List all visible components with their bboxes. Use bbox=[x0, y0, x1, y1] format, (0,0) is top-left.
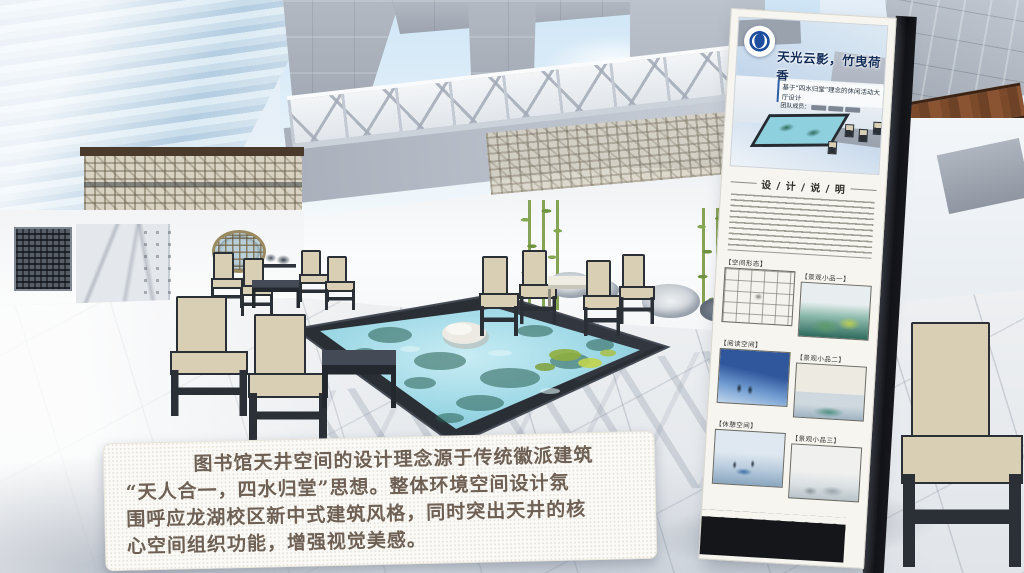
signboard-render-image: 天光云影，竹曳荷香 基于“四水归堂”理念的休闲活动大厅设计 团队成员： bbox=[730, 16, 889, 175]
signboard-bottom-band bbox=[700, 516, 846, 562]
gallery-item: 【阅读空间】 bbox=[716, 337, 791, 417]
wall-calligraphy bbox=[144, 222, 174, 294]
gallery-item: 【景观小品二】 bbox=[793, 352, 868, 422]
gallery-image-reading-space bbox=[717, 348, 791, 407]
armchair bbox=[246, 314, 330, 442]
armchair bbox=[582, 260, 622, 336]
armchair bbox=[324, 256, 356, 310]
gallery-image-landscape-2 bbox=[793, 362, 867, 421]
caption-box: 图书馆天井空间的设计理念源于传统徽派建筑 “天人合一，四水归堂”思想。整体环境空… bbox=[103, 431, 658, 571]
design-notes-title: 设 / 计 / 说 / 明 bbox=[761, 176, 847, 196]
tea-table bbox=[252, 280, 300, 308]
courtyard-3d-viewport[interactable]: 天光云影，竹曳荷香 基于“四水归堂”理念的休闲活动大厅设计 团队成员： 设 / … bbox=[0, 0, 1024, 573]
lattice-divider bbox=[84, 182, 302, 187]
exhibit-signboard[interactable]: 天光云影，竹曳荷香 基于“四水归堂”理念的休闲活动大厅设计 团队成员： 设 / … bbox=[698, 8, 916, 570]
gallery-image-landscape-1 bbox=[798, 282, 872, 341]
team-name-redacted bbox=[811, 105, 826, 111]
gallery-item: 【空间形态】 bbox=[721, 256, 796, 336]
design-notes-paragraph bbox=[728, 193, 875, 258]
gallery-image-rest-space bbox=[712, 429, 786, 488]
tea-table bbox=[322, 350, 396, 408]
signboard-gallery: 【空间形态】 【景观小品一】 【阅读空间】 【景观小品二】 【休憩空间】 bbox=[711, 256, 873, 502]
armchair bbox=[478, 256, 520, 336]
armchair bbox=[618, 254, 656, 324]
team-name-redacted bbox=[828, 106, 843, 112]
air-vent-grille bbox=[14, 227, 72, 291]
team-name-redacted bbox=[845, 107, 860, 113]
gallery-image-landscape-3 bbox=[788, 443, 862, 502]
armchair-foreground bbox=[898, 322, 1024, 567]
gallery-image-plan bbox=[721, 267, 795, 326]
armchair bbox=[168, 296, 250, 416]
gallery-item: 【景观小品一】 bbox=[798, 271, 873, 341]
gallery-item: 【休憩空间】 bbox=[711, 418, 786, 498]
gallery-item: 【景观小品三】 bbox=[788, 432, 863, 502]
lattice-top-trim bbox=[80, 147, 304, 156]
university-emblem-icon bbox=[743, 25, 776, 58]
signboard-face: 天光云影，竹曳荷香 基于“四水归堂”理念的休闲活动大厅设计 团队成员： 设 / … bbox=[698, 8, 896, 569]
